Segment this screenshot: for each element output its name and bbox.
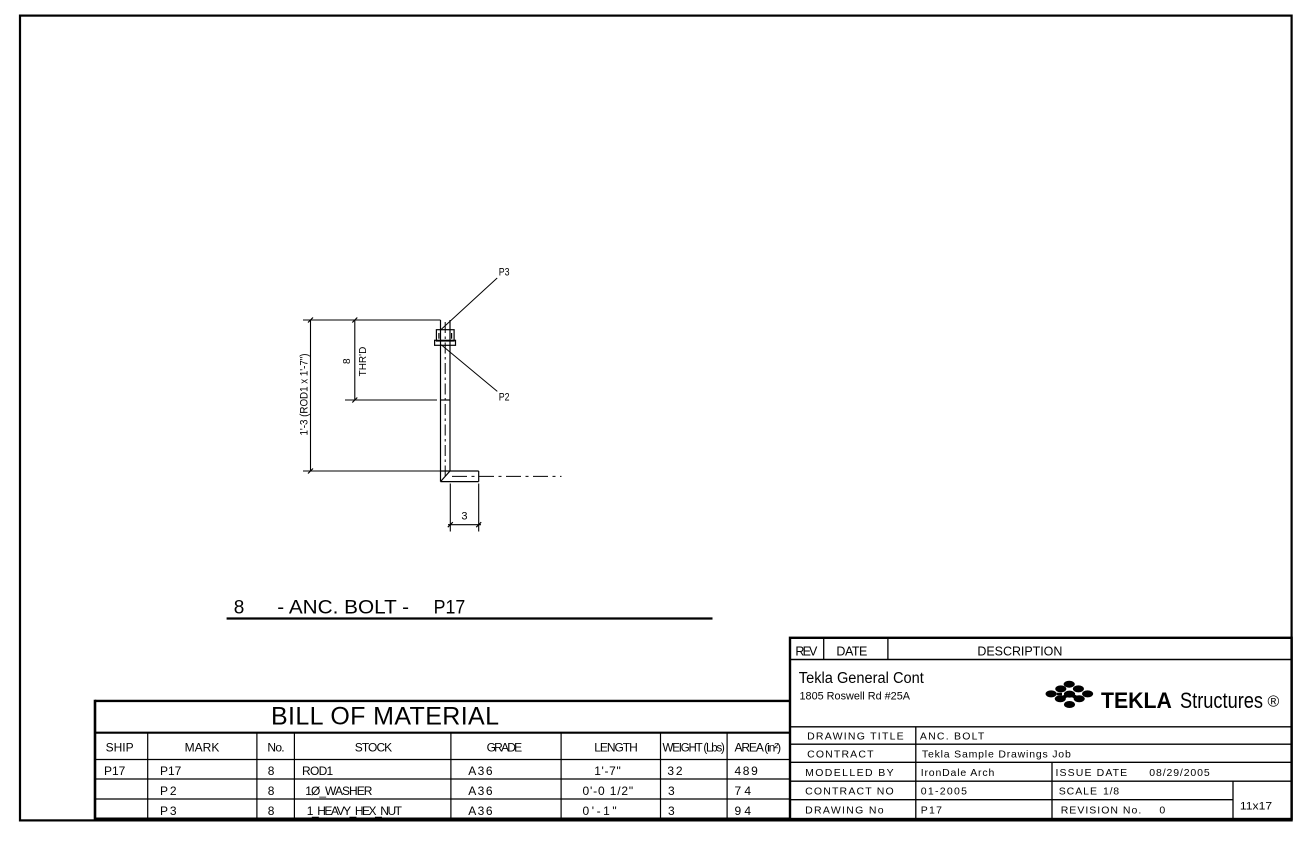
svg-text:1/8: 1/8 (1103, 786, 1119, 798)
svg-text:P17: P17 (104, 764, 126, 778)
svg-text:IronDale Arch: IronDale Arch (921, 767, 995, 779)
svg-text:P3: P3 (499, 267, 510, 279)
svg-text:11x17: 11x17 (1240, 800, 1272, 812)
svg-text:MARK: MARK (185, 741, 220, 755)
svg-text:LENGTH: LENGTH (594, 741, 638, 755)
svg-text:489: 489 (735, 764, 759, 778)
svg-text:P17: P17 (921, 805, 942, 817)
svg-text:TEKLA: TEKLA (1101, 688, 1172, 713)
svg-text:Structures: Structures (1180, 688, 1263, 713)
svg-text:CONTRACT NO: CONTRACT NO (805, 786, 894, 798)
svg-text:08/29/2005: 08/29/2005 (1149, 767, 1210, 779)
svg-text:A36: A36 (468, 764, 493, 778)
svg-text:ISSUE DATE: ISSUE DATE (1056, 767, 1128, 779)
svg-text:®: ® (1268, 694, 1280, 711)
svg-text:1Ø_WASHER: 1Ø_WASHER (305, 784, 372, 798)
svg-text:3: 3 (461, 511, 467, 523)
svg-text:BILL OF MATERIAL: BILL OF MATERIAL (271, 703, 499, 731)
svg-text:ANC. BOLT: ANC. BOLT (920, 730, 985, 742)
svg-text:8: 8 (342, 358, 353, 364)
svg-text:8: 8 (268, 784, 275, 798)
svg-text:P17: P17 (434, 598, 466, 619)
svg-text:No.: No. (267, 741, 284, 755)
svg-text:STOCK: STOCK (355, 741, 392, 755)
svg-text:Tekla Sample Drawings Job: Tekla Sample Drawings Job (922, 749, 1071, 761)
svg-text:SCALE: SCALE (1059, 786, 1097, 798)
svg-text:0'-0 1/2": 0'-0 1/2" (583, 784, 634, 798)
svg-text:1'-3 (ROD1 x 1'-7"): 1'-3 (ROD1 x 1'-7") (299, 354, 311, 436)
svg-text:AREA (in²): AREA (in²) (735, 741, 782, 755)
svg-text:8: 8 (234, 598, 245, 619)
svg-text:REVISION No.: REVISION No. (1061, 805, 1142, 817)
svg-text:WEIGHT (Lbs): WEIGHT (Lbs) (663, 743, 726, 755)
svg-text:1'-7": 1'-7" (594, 764, 621, 778)
svg-text:DATE: DATE (836, 644, 867, 658)
svg-text:P2: P2 (499, 391, 510, 403)
svg-text:0: 0 (1159, 805, 1165, 817)
svg-text:Tekla General Cont: Tekla General Cont (799, 670, 925, 687)
svg-text:DESCRIPTION: DESCRIPTION (977, 644, 1062, 658)
svg-text:8: 8 (268, 804, 275, 818)
svg-text:01-2005: 01-2005 (921, 786, 967, 798)
svg-text:REV: REV (795, 644, 818, 658)
svg-text:1_HEAVY_HEX_NUT: 1_HEAVY_HEX_NUT (307, 804, 403, 818)
svg-text:3: 3 (668, 804, 675, 818)
svg-text:8: 8 (268, 764, 275, 778)
svg-text:CONTRACT: CONTRACT (807, 749, 874, 761)
svg-text:32: 32 (667, 764, 682, 778)
svg-text:1805 Roswell Rd #25A: 1805 Roswell Rd #25A (800, 691, 911, 703)
svg-text:A36: A36 (468, 804, 493, 818)
svg-text:DRAWING TITLE: DRAWING TITLE (807, 730, 904, 742)
svg-text:3: 3 (668, 784, 675, 798)
svg-text:- ANC. BOLT -: - ANC. BOLT - (277, 598, 409, 619)
svg-text:GRADE: GRADE (487, 741, 523, 755)
svg-text:MODELLED BY: MODELLED BY (805, 767, 894, 779)
svg-text:P17: P17 (160, 764, 182, 778)
svg-text:THR'D: THR'D (358, 347, 369, 377)
svg-text:0'-1": 0'-1" (583, 804, 617, 818)
svg-text:DRAWING No: DRAWING No (805, 805, 884, 817)
svg-text:SHIP: SHIP (106, 741, 134, 755)
svg-text:ROD1: ROD1 (302, 764, 334, 778)
svg-text:A36: A36 (468, 784, 493, 798)
